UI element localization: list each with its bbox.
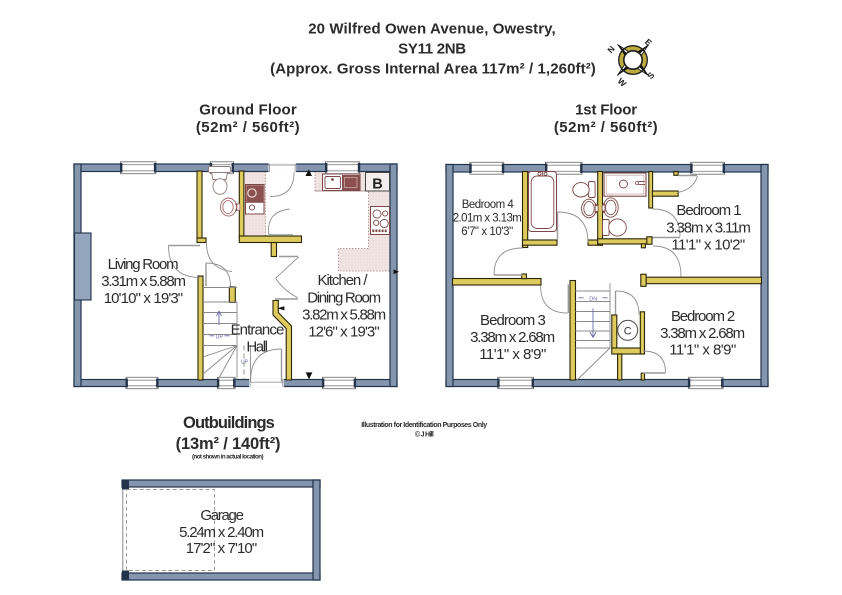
svg-text:Bedroom 4: Bedroom 4 bbox=[462, 199, 515, 211]
svg-text:B: B bbox=[372, 177, 382, 193]
svg-text:1st Floor: 1st Floor bbox=[575, 102, 637, 119]
svg-text:(Approx. Gross Internal Area 1: (Approx. Gross Internal Area 117m² / 1,2… bbox=[270, 61, 596, 78]
svg-text:Illustration for Identificatio: Illustration for Identification Purposes… bbox=[361, 422, 487, 429]
svg-text:11'1" x 8'9": 11'1" x 8'9" bbox=[669, 342, 736, 359]
svg-text:11'1" x 10'2": 11'1" x 10'2" bbox=[671, 237, 745, 254]
svg-text:Entrance: Entrance bbox=[231, 322, 284, 339]
svg-text:11'1" x 8'9": 11'1" x 8'9" bbox=[479, 346, 546, 363]
svg-text:UP: UP bbox=[241, 360, 249, 366]
svg-text:(52m² / 560ft²): (52m² / 560ft²) bbox=[554, 119, 658, 136]
svg-text:(52m² / 560ft²): (52m² / 560ft²) bbox=[196, 119, 300, 136]
svg-text:3.38m x 2.68m: 3.38m x 2.68m bbox=[660, 325, 744, 342]
svg-text:17'2" x 7'10": 17'2" x 7'10" bbox=[186, 540, 257, 557]
svg-text:5.24m x 2.40m: 5.24m x 2.40m bbox=[179, 524, 263, 541]
svg-text:2.01m x 3.13m: 2.01m x 3.13m bbox=[453, 213, 522, 225]
svg-text:20 Wilfred Owen Avenue, Owestr: 20 Wilfred Owen Avenue, Owestry, bbox=[308, 21, 556, 38]
svg-text:6'7" x 10'3": 6'7" x 10'3" bbox=[461, 226, 513, 238]
svg-text:Garage: Garage bbox=[200, 507, 243, 524]
svg-text:Outbuildings: Outbuildings bbox=[183, 414, 275, 432]
svg-text:UP: UP bbox=[215, 335, 223, 341]
svg-text:Ground Floor: Ground Floor bbox=[199, 102, 297, 119]
svg-text:3.38m x 3.11m: 3.38m x 3.11m bbox=[666, 220, 750, 237]
svg-text:DN: DN bbox=[589, 297, 597, 303]
svg-text:Bedroom 1: Bedroom 1 bbox=[676, 202, 741, 219]
svg-text:(not shown in actual location): (not shown in actual location) bbox=[192, 454, 264, 461]
svg-text:Bedroom 2: Bedroom 2 bbox=[671, 308, 735, 325]
svg-text:Bedroom 3: Bedroom 3 bbox=[480, 312, 546, 329]
svg-text:Hall: Hall bbox=[246, 339, 267, 356]
svg-text:(13m² / 140ft²): (13m² / 140ft²) bbox=[176, 435, 281, 453]
svg-text:SY11 2NB: SY11 2NB bbox=[398, 41, 466, 58]
svg-text:© J Hill: © J Hill bbox=[415, 431, 434, 439]
svg-text:3.38m x 2.68m: 3.38m x 2.68m bbox=[470, 329, 554, 346]
svg-text:Living Room: Living Room bbox=[108, 256, 178, 273]
svg-text:Kitchen /: Kitchen / bbox=[318, 272, 369, 289]
svg-text:C: C bbox=[624, 326, 632, 338]
svg-text:3.82m x 5.88m: 3.82m x 5.88m bbox=[302, 307, 385, 324]
svg-text:10'10" x 19'3": 10'10" x 19'3" bbox=[104, 290, 183, 307]
svg-text:3.31m x 5.88m: 3.31m x 5.88m bbox=[101, 273, 185, 290]
svg-text:12'6" x 19'3": 12'6" x 19'3" bbox=[308, 324, 379, 341]
svg-text:Dining Room: Dining Room bbox=[307, 290, 380, 307]
